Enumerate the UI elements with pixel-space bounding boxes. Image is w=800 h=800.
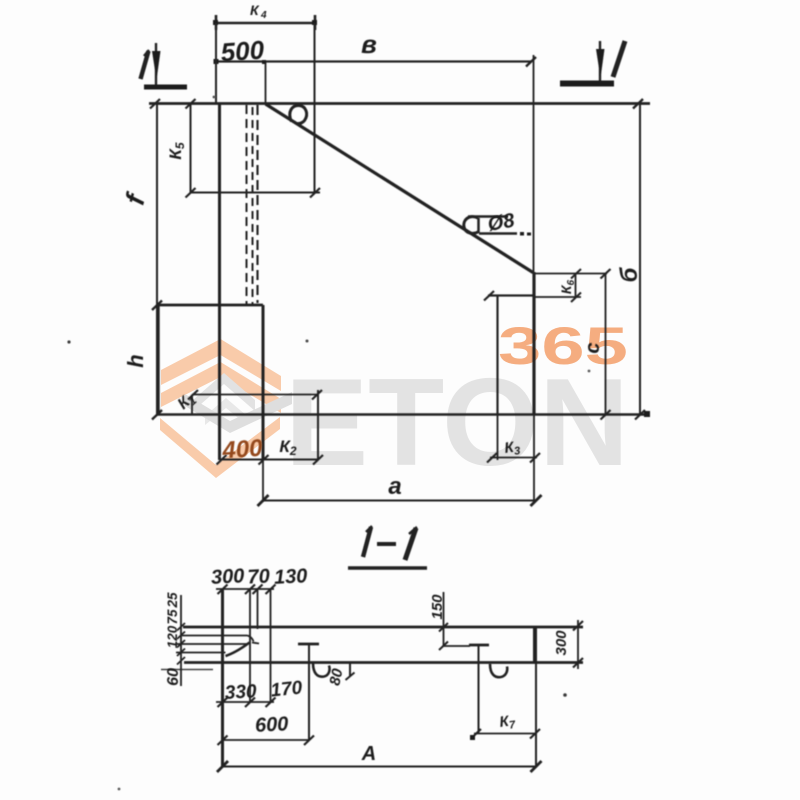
svg-text:в: в [361,29,377,59]
svg-text:70: 70 [247,565,270,588]
svg-text:170: 170 [270,677,304,701]
svg-text:а: а [388,473,401,500]
svg-text:150: 150 [429,594,446,620]
svg-text:330: 330 [224,681,257,704]
svg-text:4: 4 [260,10,267,21]
svg-text:300: 300 [553,630,570,656]
svg-text:75: 75 [165,609,180,625]
svg-text:К: К [250,2,260,18]
svg-text:Ø8: Ø8 [486,209,517,235]
svg-text:с: с [582,342,604,353]
svg-text:25: 25 [165,592,180,609]
svg-text:500: 500 [220,35,266,68]
svg-text:400: 400 [221,435,264,465]
svg-text:А: А [361,743,376,765]
svg-text:60: 60 [165,668,182,686]
svg-text:600: 600 [254,713,288,737]
svg-text:б: б [616,266,643,282]
svg-text:120: 120 [165,625,180,648]
svg-text:ETON: ETON [285,354,629,492]
svg-text:300: 300 [210,565,244,589]
svg-text:h: h [123,354,148,367]
svg-text:130: 130 [273,565,307,589]
